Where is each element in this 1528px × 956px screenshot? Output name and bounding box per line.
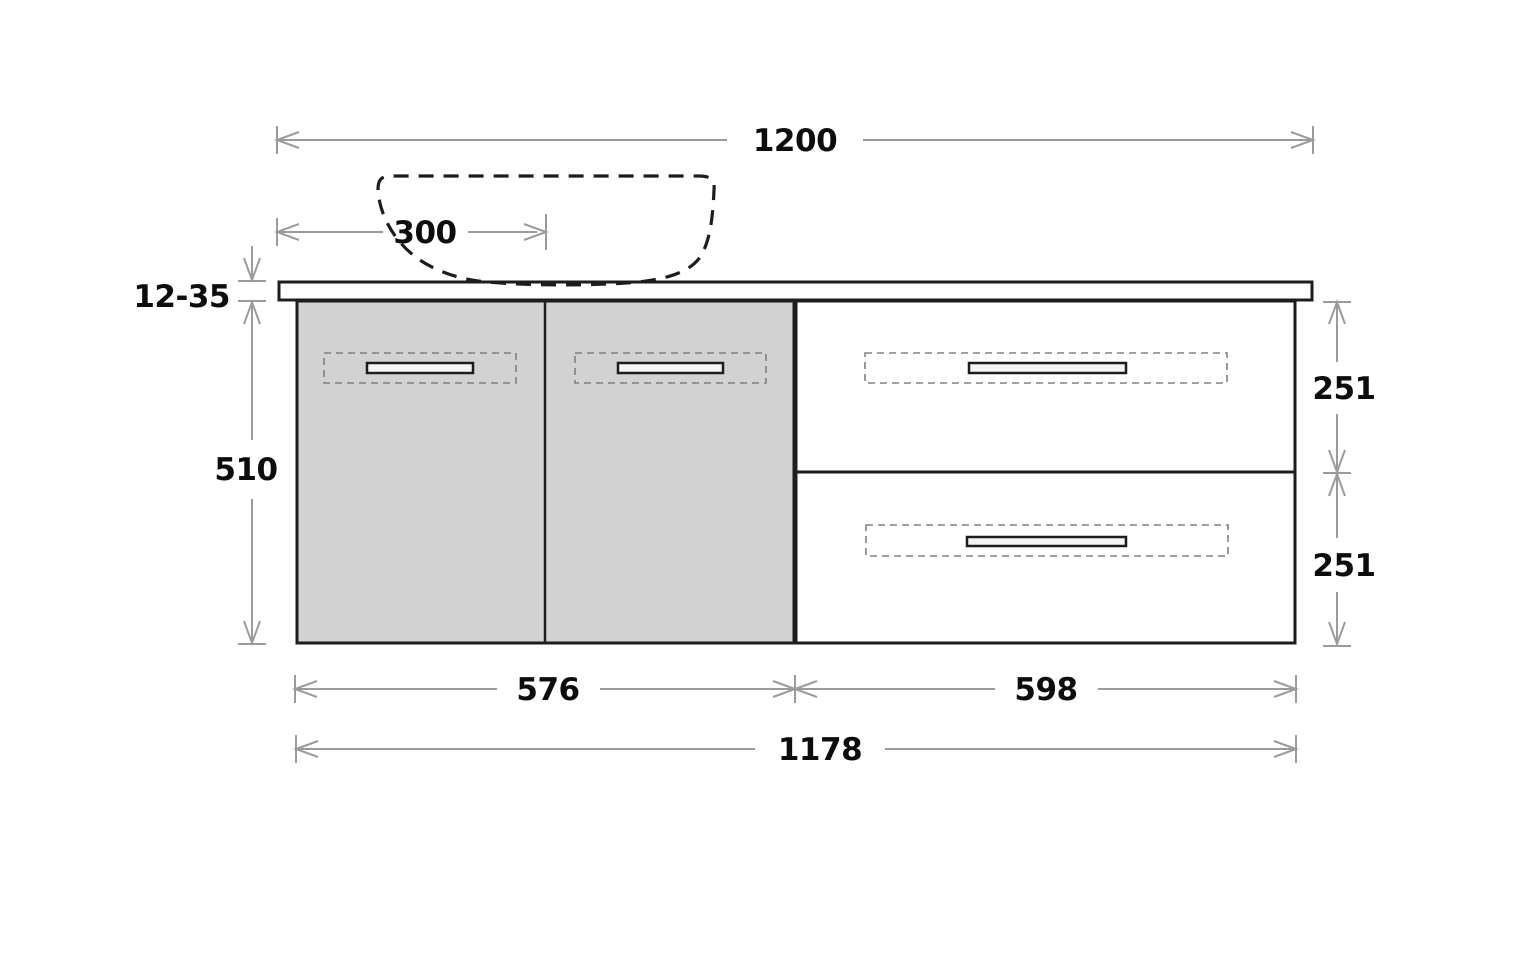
dim-label-top-drawer: 251 [1312,371,1375,407]
dim-label-basin-offset: 300 [393,215,456,251]
dim-top-drawer-height: 251 [1312,302,1375,473]
vanity-technical-drawing: 1200 300 12-35 510 [0,0,1528,956]
dim-total-width: 1200 [277,123,1313,159]
dim-cabinet-width: 1178 [296,732,1296,768]
dim-bottom-drawer-height: 251 [1312,474,1375,646]
dim-label-total-width: 1200 [753,123,837,159]
dim-label-cabinet-height: 510 [214,452,277,488]
top-drawer-handle [969,363,1126,373]
drawing-svg: 1200 300 12-35 510 [0,0,1528,956]
cabinet-group [297,301,1295,643]
dim-basin-offset: 300 [277,214,546,251]
dim-cabinet-height: 510 [214,303,277,644]
dim-label-drawers-width: 598 [1014,672,1077,708]
dim-countertop-thickness: 12-35 [133,246,266,324]
dim-drawers-width: 598 [795,672,1296,708]
right-door-handle [618,363,723,373]
bottom-drawer-handle [967,537,1126,546]
dim-doors-width: 576 [295,672,795,708]
dim-label-countertop-thickness: 12-35 [133,279,230,315]
dim-label-cabinet-width: 1178 [778,732,862,768]
left-door-handle [367,363,473,373]
countertop [279,282,1312,300]
dim-label-doors-width: 576 [516,672,579,708]
dim-label-bottom-drawer: 251 [1312,548,1375,584]
